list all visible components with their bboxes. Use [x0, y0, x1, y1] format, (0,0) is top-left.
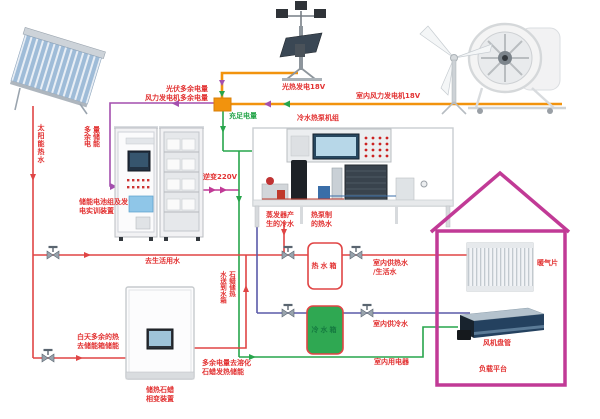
battery-cabinet: [159, 126, 204, 241]
label-paraffin-return: 水送到水箱石蜡储热: [218, 271, 236, 304]
system-diagram: 光伏多余电量 风力发电机多余电量 充足电量 光热发电18V 室内风力发电机18V…: [0, 0, 600, 419]
label-hot-tank: 热水箱: [308, 261, 342, 271]
label-paraffin-return-left: 水送到水箱: [219, 271, 227, 304]
label-cold-tank: 冷水箱: [307, 325, 343, 335]
label-battery-device: 储能电池组及发 电实训装置: [79, 198, 128, 215]
radiator: [467, 243, 533, 291]
label-solar-thermal-18v: 光热发电18V: [282, 83, 325, 92]
label-radiator: 暖气片: [537, 259, 558, 268]
label-load-platform: 负载平台: [479, 365, 507, 374]
label-fan-coil: 风机盘管: [483, 339, 511, 348]
label-evap-cold-water: 蒸发器产 生的冷水: [266, 211, 294, 228]
label-surplus-power: 光伏多余电量 风力发电机多余电量: [120, 85, 208, 102]
label-wind-surplus: 风力发电机多余电量: [120, 94, 208, 103]
valve-icon: [350, 247, 362, 259]
valve-icon: [282, 305, 294, 317]
label-surplus-storage: 多余电量储能: [83, 126, 101, 147]
solar-tracker: [276, 1, 326, 81]
label-inverter-220v: 逆变220V: [203, 173, 237, 182]
label-to-domestic-water: 去生活用水: [145, 257, 180, 266]
valve-icon: [361, 305, 373, 317]
solar-collector: [8, 27, 105, 114]
label-paraffin-device: 储热石蜡 相变装置: [140, 386, 180, 403]
label-surplus-melt: 多余电量去溶化 石蜡发热储能: [202, 359, 251, 376]
label-sufficient-power: 充足电量: [229, 112, 257, 121]
label-indoor-cold-water: 室内供冷水: [373, 320, 408, 329]
power-junction-box: [214, 98, 231, 111]
label-paraffin-return-right: 石蜡储热: [228, 271, 236, 297]
fan-coil-unit: [457, 308, 544, 340]
valve-icon: [42, 350, 54, 362]
label-solar-hot-water: 太阳能热水: [36, 124, 45, 164]
label-indoor-appliances: 室内用电器: [374, 358, 409, 367]
label-indoor-wind-18v: 室内风力发电机18V: [356, 92, 420, 101]
label-hp-hot-water: 热泵制 的热水: [311, 211, 332, 228]
label-pv-surplus: 光伏多余电量: [120, 85, 208, 94]
control-cabinet: [114, 126, 158, 241]
label-surplus-storage-col1: 多余电: [84, 126, 92, 147]
wind-turbine: [420, 24, 566, 114]
label-heat-pump-unit: 冷水热泵机组: [297, 114, 339, 123]
valve-icon: [47, 247, 59, 259]
paraffin-phase-change-device: [126, 287, 194, 379]
label-day-surplus-heat: 白天多余的热 去储能箱储能: [77, 333, 119, 350]
label-indoor-hot-water: 室内供热水 /生活水: [373, 259, 408, 276]
label-surplus-storage-col2: 量储能: [93, 126, 101, 147]
